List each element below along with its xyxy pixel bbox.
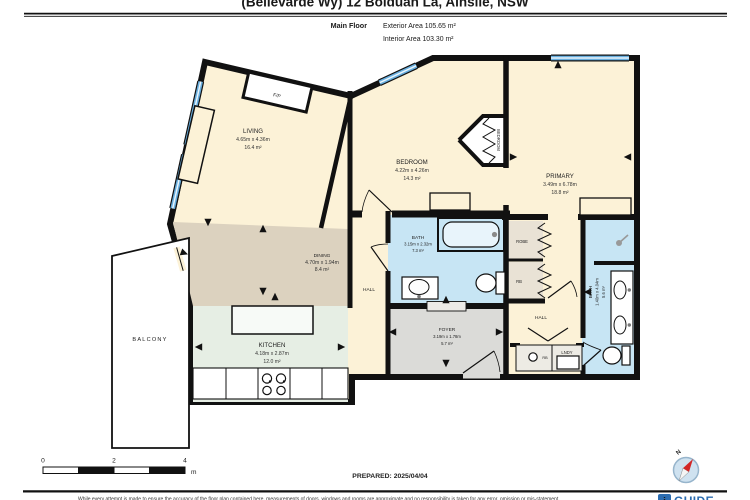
kitchen-island [232, 306, 313, 334]
ensuite-vanity [611, 271, 633, 344]
header: (Bellevarde Wy) 12 Bolduan La, Ainslie, … [24, 0, 727, 43]
compass-north-label: N [675, 449, 682, 456]
logo-text: GUIDE [674, 494, 714, 500]
hall-rear-label: HALL [535, 315, 547, 321]
primary-dresser [580, 198, 631, 215]
svg-text:3.49m x 6.78m: 3.49m x 6.78m [543, 182, 577, 188]
scale-unit: m [191, 469, 197, 476]
kitchen-counter [193, 368, 348, 399]
page-title: (Bellevarde Wy) 12 Bolduan La, Ainslie, … [241, 0, 529, 10]
svg-text:4.22m x 4.26m: 4.22m x 4.26m [395, 168, 429, 174]
balcony-outline [112, 238, 189, 448]
bedroom-robe-label: BEDROOM [496, 129, 501, 151]
laundry-tub-icon [529, 353, 537, 361]
svg-text:BATH: BATH [412, 235, 425, 241]
svg-text:FOYER: FOYER [439, 327, 456, 333]
svg-text:4.18m x 2.87m: 4.18m x 2.87m [255, 351, 289, 357]
brand-logo: i GUIDE [658, 494, 714, 500]
svg-text:1.40m x 4.04m: 1.40m x 4.04m [595, 278, 600, 306]
bathtub-icon [438, 218, 504, 251]
toilet-icon [476, 272, 505, 294]
svg-text:5.6 m²: 5.6 m² [601, 285, 606, 297]
svg-text:DINING: DINING [314, 253, 331, 259]
floor-plan-page: (Bellevarde Wy) 12 Bolduan La, Ainslie, … [0, 0, 750, 500]
floor-label: Main Floor [331, 21, 368, 30]
exterior-area: Exterior Area 105.65 m² [383, 23, 456, 30]
svg-text:18.8 m²: 18.8 m² [551, 190, 569, 196]
scale-tick-4: 4 [183, 458, 187, 465]
hall-center-label: HALL [363, 287, 375, 293]
svg-text:BATH: BATH [588, 285, 594, 298]
svg-text:LIVING: LIVING [243, 128, 263, 135]
disclaimer-text: While every attempt is made to ensure th… [78, 497, 560, 500]
robe-label: ROBE [516, 239, 528, 244]
balcony: BALCONY [112, 238, 189, 448]
washer-icon [557, 356, 579, 369]
rb-label: RB [516, 279, 522, 284]
svg-text:BEDROOM: BEDROOM [396, 159, 428, 166]
svg-text:KITCHEN: KITCHEN [259, 342, 286, 349]
svg-text:14.3 m²: 14.3 m² [403, 176, 421, 182]
balcony-label: BALCONY [132, 337, 167, 343]
lndy-label: LNDY [561, 350, 572, 355]
svg-text:8.4 m²: 8.4 m² [315, 267, 330, 273]
svg-text:4.65m x 4.36m: 4.65m x 4.36m [236, 137, 270, 143]
svg-text:4.70m x 1.94m: 4.70m x 1.94m [305, 260, 339, 266]
scale-tick-0: 0 [41, 458, 45, 465]
footer: PREPARED: 2025/04/04 While every attempt… [23, 473, 727, 500]
svg-text:3.19m x 1.78m: 3.19m x 1.78m [433, 334, 461, 339]
svg-text:PRIMARY: PRIMARY [546, 173, 574, 180]
rb-small-label: RB [542, 356, 548, 360]
svg-text:5.7 m²: 5.7 m² [441, 341, 453, 346]
bedroom-dresser [430, 193, 470, 210]
logo-mark: i [663, 497, 666, 500]
scale-bar: 0 2 4 m [41, 458, 197, 477]
scale-tick-2: 2 [112, 458, 116, 465]
interior-area: Interior Area 103.30 m² [383, 36, 454, 43]
svg-text:16.4 m²: 16.4 m² [244, 145, 262, 151]
svg-text:7.3 m²: 7.3 m² [412, 248, 424, 253]
sink-icon [402, 277, 438, 299]
ensuite-toilet-icon [603, 346, 630, 365]
compass: N [674, 449, 699, 482]
floor-plan-canvas: (Bellevarde Wy) 12 Bolduan La, Ainslie, … [0, 0, 750, 500]
svg-text:3.15m x 2.32m: 3.15m x 2.32m [404, 242, 432, 247]
prepared-date: PREPARED: 2025/04/04 [352, 473, 428, 480]
svg-text:12.0 m²: 12.0 m² [263, 359, 281, 365]
